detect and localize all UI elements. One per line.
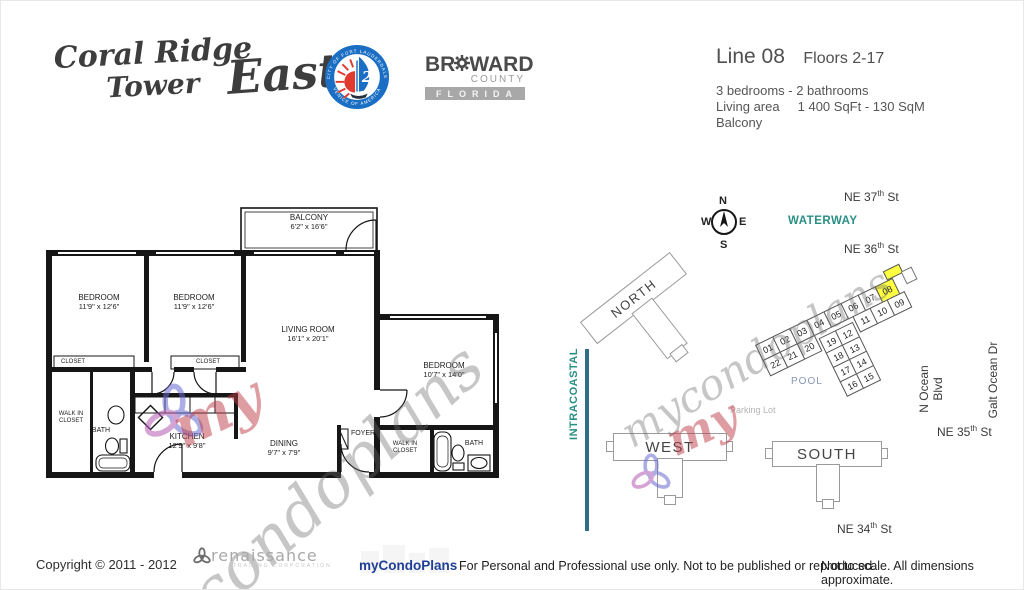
broward-florida-label: FLORIDA xyxy=(425,87,525,100)
renaissance-trefoil-icon xyxy=(193,546,211,568)
bedroom1-label: BEDROOM 11'9" x 12'6" xyxy=(59,293,139,311)
line-number: Line 08 xyxy=(716,45,785,68)
kitchen-counter xyxy=(135,397,236,430)
mycondoplans-brand: myCondoPlans xyxy=(359,558,457,573)
bath-left-label: BATH xyxy=(81,426,121,435)
building-title: Coral Ridge Tower xyxy=(53,37,253,101)
street-ne34: NE 34th St xyxy=(837,521,892,536)
compass-icon: N W E S xyxy=(701,195,745,253)
road-galt-ocean-dr: Galt Ocean Dr xyxy=(986,336,1000,424)
bath-left-fixtures xyxy=(96,406,130,471)
street-ne36: NE 36th St xyxy=(844,241,899,256)
broward-county-logo: BR WARD COUNTY FLORIDA xyxy=(425,53,525,100)
parking-lot-label: Parking Lot xyxy=(730,405,776,415)
spec-balcony: Balcony xyxy=(716,115,925,131)
building-end-cap xyxy=(901,266,918,284)
fort-lauderdale-seal-icon: 2 CITY OF FORT LAUDERDALE VENICE OF AMER… xyxy=(323,43,391,116)
scale-note: Not to scale. All dimensions approximate… xyxy=(821,559,1023,587)
walkin-right-label: WALK IN CLOSET xyxy=(385,441,425,455)
kitchen-label: KITCHEN 12'9" x 9'8" xyxy=(147,432,227,450)
spec-living-area-label: Living area xyxy=(716,99,794,115)
west-building-label: WEST xyxy=(613,433,727,461)
dining-label: DINING 9'7" x 7'9" xyxy=(244,439,324,457)
north-building: NORTH xyxy=(573,243,732,400)
street-ne35: NE 35th St xyxy=(937,424,992,439)
renaissance-logo: renaissance TRADING CORPORATION xyxy=(193,546,332,569)
spec-bedrooms: 3 bedrooms - 2 bathrooms xyxy=(716,83,925,99)
west-building: WEST xyxy=(613,433,733,513)
intracoastal-label: INTRACOASTAL xyxy=(568,343,580,445)
gear-icon xyxy=(455,53,469,77)
svg-text:2: 2 xyxy=(361,69,372,86)
closet1-label: CLOSET xyxy=(53,359,93,366)
door-gaps xyxy=(152,367,369,478)
floors-range: Floors 2-17 xyxy=(803,50,884,67)
bedroom2-label: BEDROOM 11'9" x 12'6" xyxy=(154,293,234,311)
south-building: SOUTH xyxy=(772,441,888,517)
bedroom3-label: BEDROOM 10'7" x 14'0" xyxy=(394,361,494,379)
bath-right-fixtures xyxy=(434,432,490,471)
unit-info: Line 08 Floors 2-17 3 bedrooms - 2 bathr… xyxy=(716,45,925,131)
unit-stem: 19 18 17 16 12 13 14 15 xyxy=(819,322,880,396)
foyer-label: FOYER xyxy=(338,429,388,438)
living-room-label: LIVING ROOM 16'1" x 20'1" xyxy=(258,325,358,343)
broward-name-left: BR xyxy=(425,53,455,77)
waterway-label: WATERWAY xyxy=(788,215,858,227)
usage-disclaimer: For Personal and Professional use only. … xyxy=(459,559,876,573)
spec-living-area-value: 1 400 SqFt - 130 SqM xyxy=(798,99,925,114)
bath-right-label: BATH xyxy=(454,439,494,448)
closet2-label: CLOSET xyxy=(188,359,228,366)
floor-plan-sheet: Coral Ridge Tower East xyxy=(0,0,1024,590)
balcony-label: BALCONY 6'2" x 16'6" xyxy=(244,213,374,231)
east-building-map: 01 02 03 04 05 06 07 08 22 21 20 11 10 0… xyxy=(755,274,943,431)
street-ne37: NE 37th St xyxy=(844,189,899,204)
renaissance-subtitle: TRADING CORPORATION xyxy=(233,563,332,569)
walkin-left-label: WALK IN CLOSET xyxy=(52,411,90,425)
floor-plan: BALCONY 6'2" x 16'6" BEDROOM 11'9" x 12'… xyxy=(44,193,509,488)
copyright-text: Copyright © 2011 - 2012 xyxy=(36,557,177,572)
intracoastal-shoreline xyxy=(585,349,589,531)
